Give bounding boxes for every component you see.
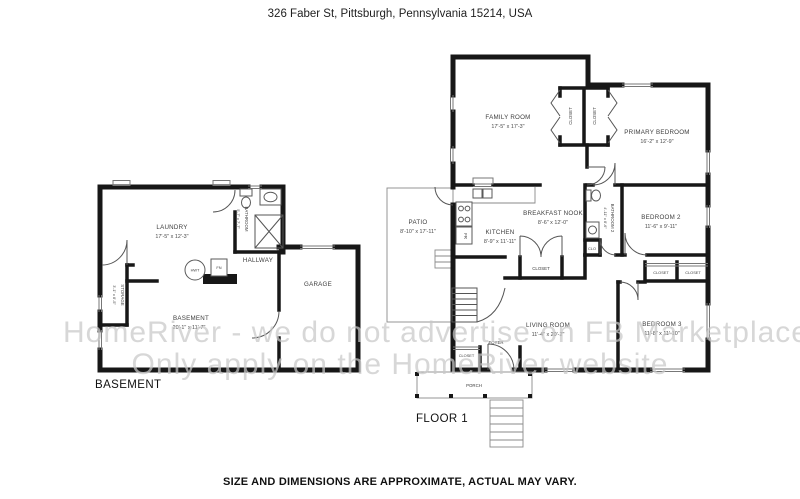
room-label-primary-bedroom: PRIMARY BEDROOM [624, 129, 689, 136]
floor1-plan-title: FLOOR 1 [416, 413, 468, 425]
room-dims-bathroom: 5'-7" x 7'-7" [236, 209, 241, 229]
room-label-family-room: FAMILY ROOM [485, 114, 530, 121]
room-label-bathroom: BATHROOM [244, 206, 249, 231]
floor1-labels: FAMILY ROOM 17'-5" x 17'-3" PRIMARY BEDR… [400, 107, 701, 388]
room-dims-primary-bedroom: 16'-2" x 12'-9" [640, 139, 673, 145]
closet-label-hall-right: CLOSET [685, 270, 701, 275]
room-label-kitchen: KITCHEN [486, 229, 515, 236]
closet-label-foyer: CLOSET [459, 353, 475, 358]
room-label-hallway: HALLWAY [243, 257, 273, 264]
room-label-bedroom2: BEDROOM 2 [641, 214, 681, 221]
closet-label-hall-left: CLOSET [653, 270, 669, 275]
room-label-laundry: LAUNDRY [156, 224, 187, 231]
room-dims-family-room: 17'-5" x 17'-3" [491, 124, 524, 130]
room-label-basement: BASEMENT [173, 315, 209, 322]
fridge-label: FR [463, 233, 468, 239]
room-dims-living-room: 11'-4" x 20'-2" [532, 332, 565, 338]
room-label-garage: GARAGE [304, 281, 332, 288]
disclaimer-text: SIZE AND DIMENSIONS ARE APPROXIMATE, ACT… [0, 476, 800, 488]
room-label-bedroom3: BEDROOM 3 [642, 321, 682, 328]
clo-label: CLO [588, 246, 596, 251]
room-dims-patio: 8'-10" x 17'-11" [400, 229, 436, 235]
floor1-fixtures [452, 187, 601, 322]
room-label-patio: PATIO [409, 219, 428, 226]
room-label-breakfast-nook: BREAKFAST NOOK [523, 210, 583, 217]
porch-label: PORCH [466, 383, 482, 388]
basement-plan-title: BASEMENT [95, 379, 161, 391]
room-dims-laundry: 17'-5" x 12'-3" [155, 234, 188, 240]
room-dims-bathroom2: 4'-11" x 8'-6" [603, 207, 608, 229]
room-dims-kitchen: 8'-9" x 11'-11" [484, 239, 516, 245]
floor1-floorplan: FAMILY ROOM 17'-5" x 17'-3" PRIMARY BEDR… [380, 50, 720, 450]
room-dims-bedroom2: 11'-6" x 9'-11" [645, 224, 677, 230]
closet-label-right: CLOSET [592, 107, 597, 125]
fn-label: FN [216, 265, 221, 270]
room-label-storage: STORAGE [120, 284, 125, 305]
room-dims-basement: 20'-1" x 11'-7" [173, 325, 206, 331]
room-dims-storage: 3'-1" x 8'-5" [112, 285, 117, 305]
closet-label-left: CLOSET [568, 107, 573, 125]
floor1-patio [387, 188, 455, 322]
address-header: 326 Faber St, Pittsburgh, Pennsylvania 1… [0, 8, 800, 20]
room-label-living-room: LIVING ROOM [526, 322, 570, 329]
closet-label-kitchen: CLOSET [532, 266, 550, 271]
foyer-label: FOYER [488, 340, 503, 345]
room-dims-bedroom3: 11'-8" x 11'-10" [644, 331, 679, 337]
room-label-bathroom2: BATHROOM 2 [610, 204, 615, 233]
room-dims-breakfast-nook: 8'-6" x 12'-0" [538, 220, 568, 226]
hwt-label: HWT [191, 268, 200, 273]
basement-floorplan: LAUNDRY 17'-5" x 12'-3" BATHROOM 5'-7" x… [90, 178, 370, 383]
